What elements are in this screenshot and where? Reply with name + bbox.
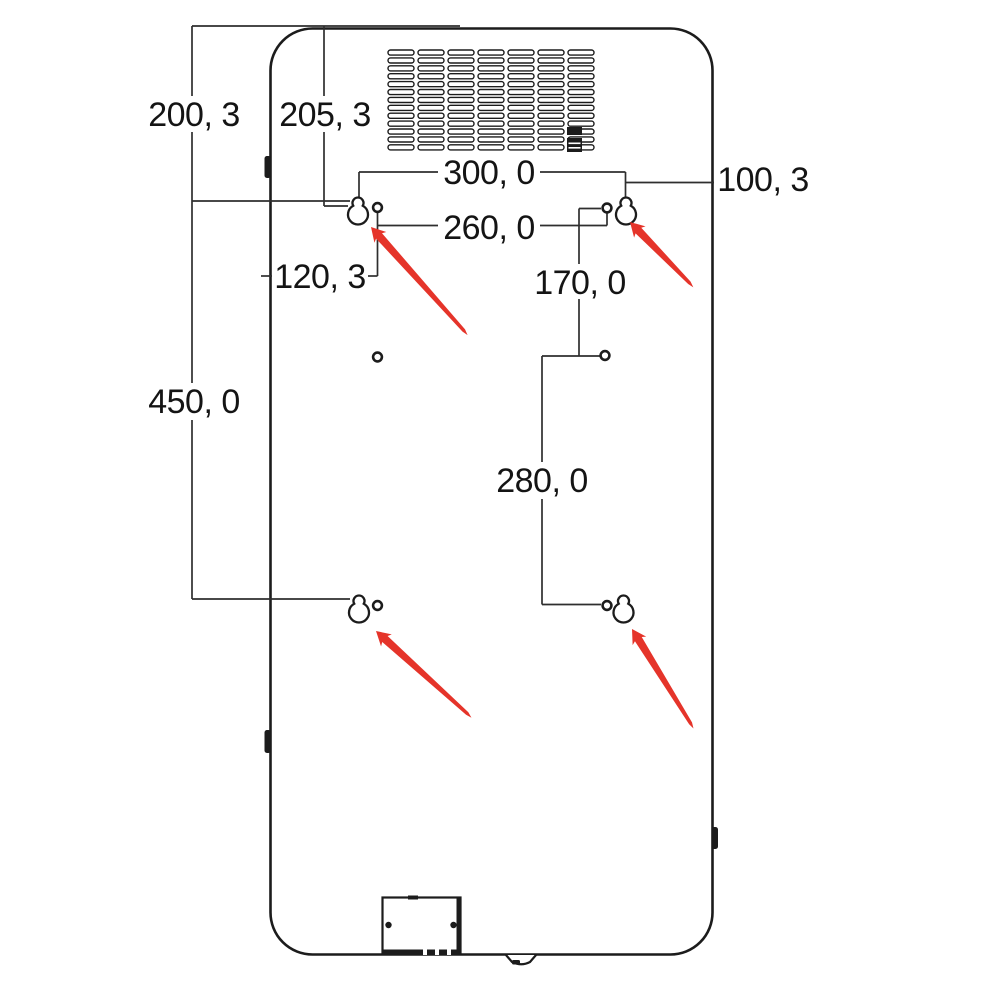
right-edge-tab	[712, 827, 719, 849]
vent-slot	[538, 50, 564, 55]
junction-box-outline	[383, 898, 461, 954]
vent-slot	[538, 105, 564, 110]
vent-slot	[388, 129, 414, 134]
screw-hole-middle-left	[373, 353, 382, 362]
vent-slot	[418, 58, 444, 63]
vent-slot	[538, 113, 564, 118]
vent-slot	[508, 129, 534, 134]
vent-slot	[538, 90, 564, 95]
vent-slot	[508, 74, 534, 79]
vent-slot	[508, 121, 534, 126]
dimension-label-205-3: 205, 3	[279, 96, 371, 134]
vent-slot	[448, 97, 474, 102]
vent-slot	[418, 90, 444, 95]
vent-slot	[388, 113, 414, 118]
vent-slot	[448, 74, 474, 79]
bottom-notch	[506, 955, 536, 964]
vent-brand-mark-line	[569, 143, 581, 145]
pointer-arrow-top-right	[624, 216, 699, 292]
vent-slot	[418, 129, 444, 134]
vent-slot	[568, 113, 594, 118]
vent-slot	[568, 66, 594, 71]
vent-slot	[538, 66, 564, 71]
dimension-label-120-3: 120, 3	[274, 258, 366, 296]
vent-slot	[478, 74, 504, 79]
vent-grille	[388, 50, 594, 152]
vent-slot	[448, 82, 474, 87]
vent-slot	[418, 113, 444, 118]
left-edge-tab-lower	[265, 730, 272, 753]
vent-slot	[448, 121, 474, 126]
vent-slot	[418, 50, 444, 55]
keyhole-slot-top-left	[348, 198, 368, 225]
vent-slot	[418, 97, 444, 102]
vent-slot	[478, 129, 504, 134]
vent-slot	[508, 137, 534, 142]
dimension-label-300-0: 300, 0	[443, 154, 535, 192]
vent-slot	[418, 105, 444, 110]
vent-slot	[418, 137, 444, 142]
dimension-label-450-0: 450, 0	[148, 383, 240, 421]
vent-slot	[388, 90, 414, 95]
screw-hole-top-left	[373, 203, 382, 212]
vent-slot	[448, 145, 474, 150]
dimension-label-200-3: 200, 3	[148, 96, 240, 134]
screw-hole-bottom-right	[603, 601, 612, 610]
dimension-label-280-0: 280, 0	[496, 462, 588, 500]
vent-slot	[448, 90, 474, 95]
vent-slot	[508, 82, 534, 87]
vent-slot	[508, 90, 534, 95]
vent-slot	[478, 66, 504, 71]
vent-slot	[508, 145, 534, 150]
vent-slot	[478, 97, 504, 102]
mounting-holes	[348, 198, 636, 623]
dimension-label-260-0: 260, 0	[443, 209, 535, 247]
vent-slot	[538, 82, 564, 87]
vent-slot	[418, 74, 444, 79]
vent-slot	[508, 113, 534, 118]
vent-slot	[568, 50, 594, 55]
vent-slots	[388, 50, 594, 150]
vent-brand-mark-line	[569, 147, 581, 149]
left-edge-tab-upper	[265, 156, 272, 178]
vent-slot	[478, 121, 504, 126]
vent-slot	[448, 105, 474, 110]
vent-slot	[418, 121, 444, 126]
vent-slot	[568, 121, 594, 126]
screw-hole-middle-right	[601, 351, 610, 360]
vent-slot	[538, 58, 564, 63]
vent-slot	[448, 113, 474, 118]
vent-slot	[538, 129, 564, 134]
vent-slot	[448, 58, 474, 63]
vent-slot	[538, 121, 564, 126]
vent-slot	[508, 66, 534, 71]
vent-slot	[478, 50, 504, 55]
vent-slot	[538, 97, 564, 102]
vent-slot	[388, 74, 414, 79]
vent-slot	[448, 137, 474, 142]
junction-box-top-mark	[408, 896, 418, 900]
vent-slot	[508, 58, 534, 63]
screw-hole-top-right	[603, 204, 612, 213]
vent-slot	[478, 58, 504, 63]
vent-slot	[568, 90, 594, 95]
junction-box-right-wall	[457, 898, 461, 954]
vent-slot	[448, 50, 474, 55]
screw-hole-bottom-left	[373, 601, 382, 610]
vent-brand-mark	[567, 138, 582, 152]
vent-slot	[418, 145, 444, 150]
junction-box	[382, 896, 461, 956]
pointer-arrow-bottom-left	[371, 625, 478, 723]
vent-slot	[538, 74, 564, 79]
vent-slot	[448, 129, 474, 134]
vent-slot	[568, 74, 594, 79]
vent-slot	[478, 145, 504, 150]
terminal-gap	[435, 950, 439, 956]
vent-slot	[388, 145, 414, 150]
vent-slot	[508, 50, 534, 55]
vent-slot	[478, 105, 504, 110]
drawing-canvas: 200, 3 205, 3 300, 0 100, 3 260, 0 120, …	[0, 0, 1000, 1000]
dimension-label-100-3: 100, 3	[717, 161, 809, 199]
vent-slot	[388, 97, 414, 102]
junction-box-screw-right	[450, 922, 456, 928]
vent-slot	[388, 121, 414, 126]
vent-slot	[388, 137, 414, 142]
vent-slot	[508, 97, 534, 102]
vent-slot	[568, 105, 594, 110]
vent-slot	[388, 50, 414, 55]
junction-box-screw-left	[385, 922, 391, 928]
vent-slot	[448, 66, 474, 71]
keyhole-slot-top-right	[616, 198, 636, 225]
vent-slot	[478, 82, 504, 87]
terminal-gap	[447, 950, 451, 956]
vent-slot	[478, 113, 504, 118]
keyhole-slot-bottom-left	[349, 596, 369, 623]
keyhole-slot-bottom-right	[614, 596, 634, 623]
vent-brand-mark	[567, 127, 582, 135]
vent-slot	[568, 58, 594, 63]
vent-slot	[388, 82, 414, 87]
dimension-labels: 200, 3 205, 3 300, 0 100, 3 260, 0 120, …	[148, 96, 809, 500]
vent-slot	[388, 58, 414, 63]
vent-slot	[508, 105, 534, 110]
vent-slot	[388, 105, 414, 110]
bottom-notch-mark	[512, 960, 520, 965]
vent-slot	[418, 82, 444, 87]
vent-slot	[418, 66, 444, 71]
pointer-arrow-bottom-right	[625, 625, 701, 733]
vent-slot	[478, 137, 504, 142]
vent-slot	[538, 145, 564, 150]
vent-slot	[478, 90, 504, 95]
vent-slot	[388, 66, 414, 71]
dimension-label-170-0: 170, 0	[534, 264, 626, 302]
vent-slot	[568, 97, 594, 102]
vent-slot	[568, 82, 594, 87]
vent-slot	[538, 137, 564, 142]
terminal-gap	[423, 950, 427, 956]
wall-mount-drilling-diagram: 200, 3 205, 3 300, 0 100, 3 260, 0 120, …	[0, 0, 1000, 1000]
